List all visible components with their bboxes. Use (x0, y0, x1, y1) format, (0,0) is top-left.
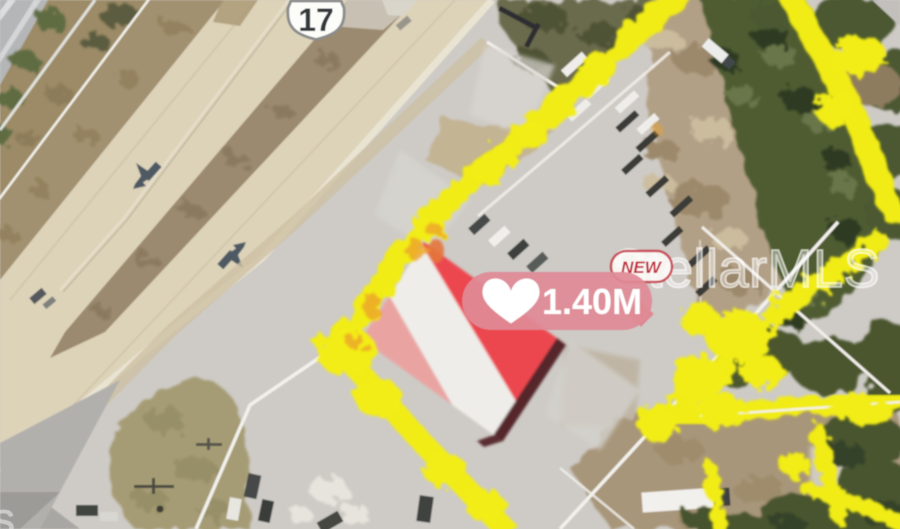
svg-text:17: 17 (298, 2, 334, 38)
svg-text:S,: S, (0, 504, 24, 529)
svg-text:1.40M: 1.40M (542, 281, 642, 322)
